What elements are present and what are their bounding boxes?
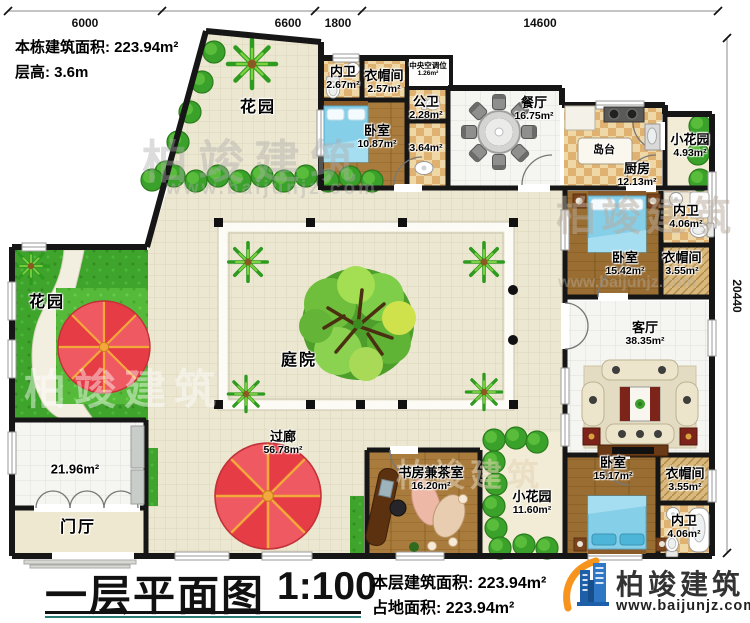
title-underline-accent [45, 616, 361, 618]
room-label-cloak-3: 衣帽间3.55m² [665, 467, 704, 493]
room-label-cloak-1: 衣帽间2.57m² [364, 69, 403, 95]
room-label-cloak-2: 衣帽间3.55m² [662, 251, 701, 277]
room-label-living: 客厅38.35m² [625, 321, 664, 347]
room-label-small-garden-2: 小花园11.60m² [512, 490, 551, 516]
company-name: 柏竣建筑 [616, 563, 744, 603]
company-url: www.baijunjz.com [616, 598, 750, 614]
site-area-text: 占地面积: 223.94m² [372, 597, 546, 622]
room-label-courtyard: 庭院 [281, 352, 317, 370]
room-label-bath-3: 内卫4.06m² [667, 514, 700, 540]
room-label-side-room: 21.96m² [51, 463, 99, 478]
title-underline [45, 611, 361, 614]
floor-area-text: 本层建筑面积: 223.94m² [372, 572, 546, 597]
title-areas: 本层建筑面积: 223.94m² 占地面积: 223.94m² [372, 572, 546, 622]
room-label-dining: 餐厅16.75m² [514, 96, 553, 122]
room-label-bedroom-3: 卧室15.17m² [593, 456, 632, 482]
room-label-garden-left: 花园 [29, 294, 65, 312]
room-label-foyer: 门厅 [60, 519, 96, 537]
floor-plan-page: 本栋建筑面积: 223.94m² 层高: 3.6m 6000 6600 1800… [0, 0, 750, 623]
room-label-small-garden-1: 小花园4.93m² [670, 133, 709, 159]
room-label-wash-corridor: 3.64m² [409, 143, 442, 155]
room-label-kitchen: 厨房12.13m² [617, 162, 656, 188]
room-label-island: 岛台 [593, 144, 615, 156]
room-label-corridor: 过廊56.78m² [263, 430, 302, 456]
room-label-study: 书房兼茶室16.20m² [398, 466, 463, 492]
room-label-garden-top: 花园 [240, 99, 276, 117]
room-label-bedroom-1: 卧室10.87m² [357, 124, 396, 150]
room-label-bedroom-2: 卧室15.42m² [605, 251, 644, 277]
company-logo-icon [560, 554, 616, 621]
room-label-bath-2: 内卫4.06m² [669, 204, 702, 230]
room-label-public-bath: 公卫2.28m² [409, 95, 442, 121]
room-label-hvac: 中央空调位1.26m² [409, 62, 447, 78]
plan-scale: 1:100 [277, 565, 377, 609]
room-label-bath-1: 内卫2.67m² [326, 65, 359, 91]
